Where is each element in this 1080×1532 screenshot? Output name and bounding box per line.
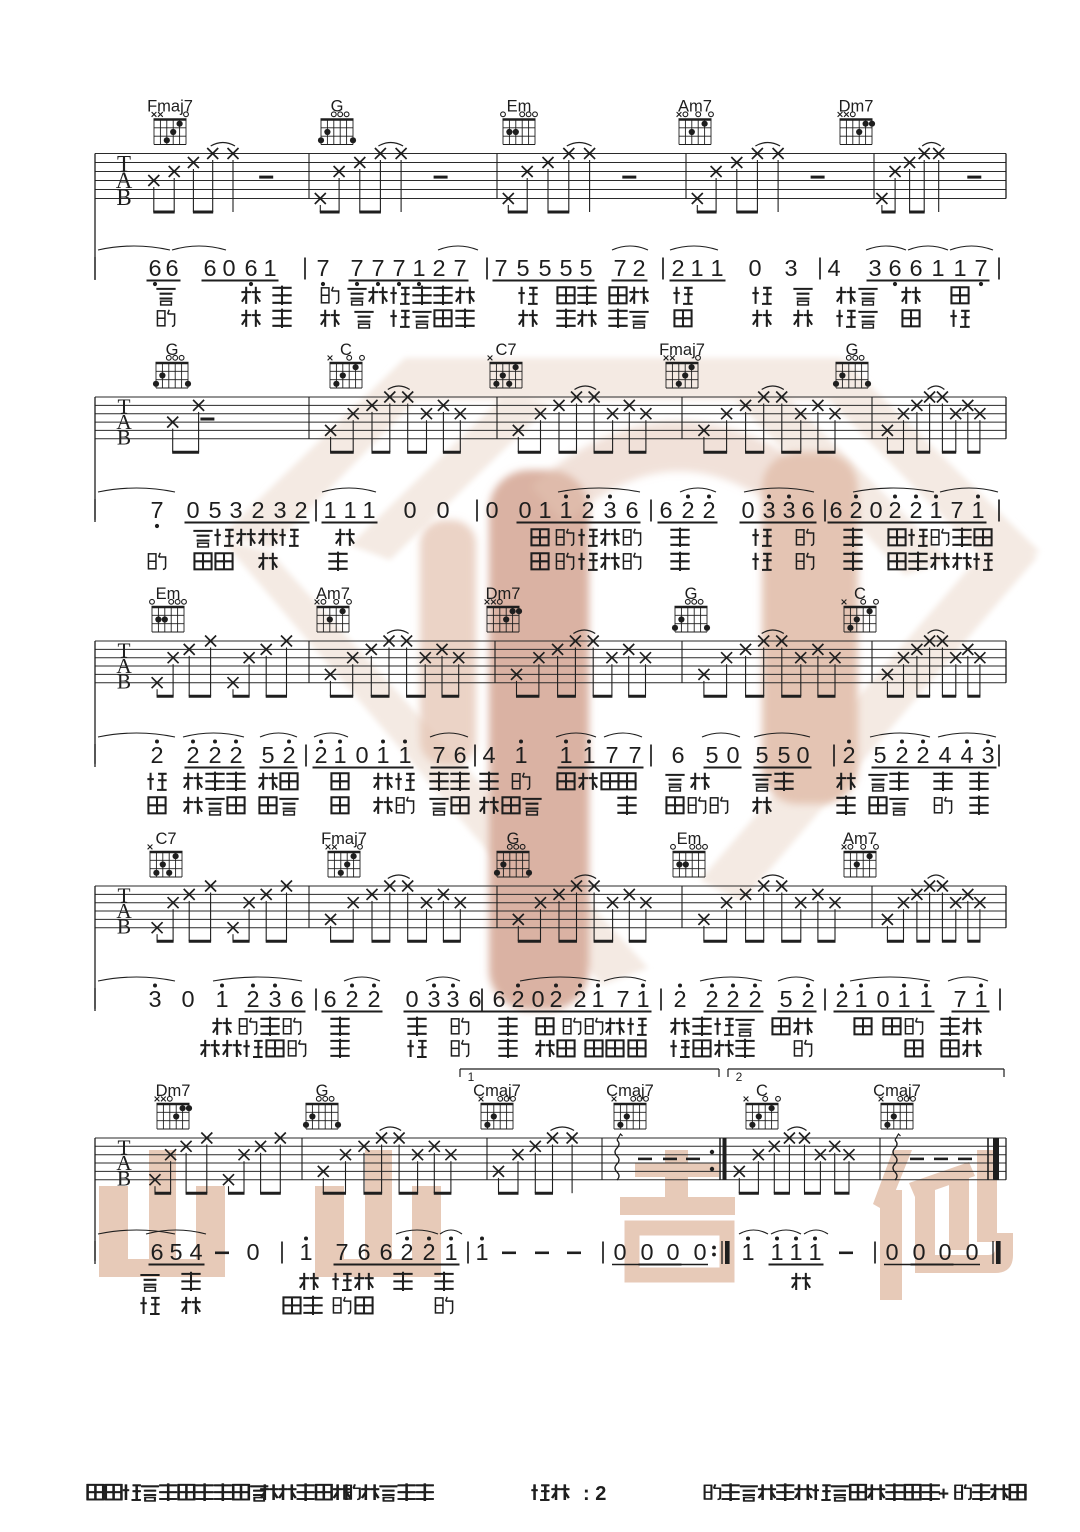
svg-text:6: 6	[203, 255, 216, 281]
svg-text:6: 6	[150, 1239, 163, 1265]
svg-text:1: 1	[636, 986, 649, 1012]
svg-text:5: 5	[755, 742, 768, 768]
svg-text:0: 0	[485, 497, 498, 523]
svg-text:1: 1	[444, 1239, 457, 1265]
svg-text:: 2: : 2	[583, 1483, 606, 1505]
svg-text:5: 5	[208, 497, 221, 523]
svg-text:4: 4	[827, 255, 840, 281]
svg-text:1: 1	[971, 497, 984, 523]
svg-text:6: 6	[379, 1239, 392, 1265]
svg-text:2: 2	[909, 497, 922, 523]
svg-text:5: 5	[516, 255, 529, 281]
svg-text:1: 1	[475, 1239, 488, 1265]
svg-text:B: B	[117, 426, 131, 450]
svg-text:B: B	[117, 670, 131, 694]
svg-text:B: B	[116, 185, 131, 210]
svg-text:0: 0	[531, 986, 544, 1012]
svg-text:0: 0	[726, 742, 739, 768]
svg-text:2: 2	[581, 497, 594, 523]
svg-text:6: 6	[909, 255, 922, 281]
svg-text:0: 0	[748, 255, 761, 281]
svg-text:7: 7	[392, 255, 405, 281]
svg-text:C: C	[340, 341, 352, 359]
svg-text:Cmaj7: Cmaj7	[473, 1082, 521, 1100]
svg-text:1: 1	[690, 255, 703, 281]
svg-text:1: 1	[789, 1239, 802, 1265]
svg-text:C7: C7	[155, 830, 176, 848]
svg-text:2: 2	[422, 1239, 435, 1265]
svg-text:6: 6	[453, 742, 466, 768]
svg-text:2: 2	[150, 742, 163, 768]
svg-text:0: 0	[965, 1239, 978, 1265]
svg-text:2: 2	[549, 986, 562, 1012]
svg-text:7: 7	[316, 255, 329, 281]
svg-text:Em: Em	[677, 830, 702, 848]
svg-text:1: 1	[559, 742, 572, 768]
svg-text:6: 6	[625, 497, 638, 523]
svg-text:3: 3	[762, 497, 775, 523]
svg-text:6: 6	[357, 1239, 370, 1265]
svg-text:2: 2	[726, 986, 739, 1012]
svg-text:2: 2	[400, 1239, 413, 1265]
svg-text:1: 1	[412, 255, 425, 281]
svg-text:3: 3	[784, 255, 797, 281]
svg-text:Dm7: Dm7	[486, 585, 521, 603]
svg-text:1: 1	[808, 1239, 821, 1265]
svg-text:1: 1	[398, 742, 411, 768]
svg-text:6: 6	[671, 742, 684, 768]
svg-text:2: 2	[801, 986, 814, 1012]
svg-text:2: 2	[282, 742, 295, 768]
svg-text:6: 6	[468, 986, 481, 1012]
svg-text:5: 5	[705, 742, 718, 768]
svg-text:+: +	[938, 1484, 949, 1505]
svg-text:Cmaj7: Cmaj7	[606, 1082, 654, 1100]
svg-text:1: 1	[538, 497, 551, 523]
svg-text:2: 2	[367, 986, 380, 1012]
svg-text:2: 2	[702, 497, 715, 523]
svg-text:0: 0	[613, 1239, 626, 1265]
svg-text:2: 2	[888, 497, 901, 523]
svg-text:Fmaj7: Fmaj7	[321, 830, 367, 848]
svg-text:2: 2	[673, 986, 686, 1012]
svg-text:1: 1	[929, 497, 942, 523]
svg-text:7: 7	[616, 986, 629, 1012]
svg-text:1: 1	[741, 1239, 754, 1265]
svg-text:2: 2	[835, 986, 848, 1012]
svg-text:0: 0	[869, 497, 882, 523]
svg-text:0: 0	[640, 1239, 653, 1265]
svg-text:2: 2	[849, 497, 862, 523]
svg-text:6: 6	[244, 255, 257, 281]
svg-text:0: 0	[405, 986, 418, 1012]
svg-text:6: 6	[290, 986, 303, 1012]
svg-text:7: 7	[150, 497, 163, 523]
svg-text:2: 2	[916, 742, 929, 768]
svg-text:4: 4	[189, 1239, 202, 1265]
svg-text:6: 6	[888, 255, 901, 281]
svg-text:6: 6	[148, 255, 161, 281]
svg-text:0: 0	[436, 497, 449, 523]
svg-text:1: 1	[215, 986, 228, 1012]
svg-text:2: 2	[246, 986, 259, 1012]
svg-text:0: 0	[666, 1239, 679, 1265]
svg-text:4: 4	[960, 742, 973, 768]
svg-text:2: 2	[432, 255, 445, 281]
svg-text:4: 4	[482, 742, 495, 768]
svg-text:3: 3	[782, 497, 795, 523]
svg-text:B: B	[117, 915, 131, 939]
svg-text:0: 0	[693, 1239, 706, 1265]
svg-text:3: 3	[603, 497, 616, 523]
svg-text:1: 1	[376, 742, 389, 768]
svg-text:2: 2	[736, 1070, 743, 1084]
svg-text:1: 1	[931, 255, 944, 281]
svg-text:3: 3	[446, 986, 459, 1012]
svg-text:7: 7	[494, 255, 507, 281]
svg-text:Em: Em	[156, 585, 181, 603]
svg-text:2: 2	[186, 742, 199, 768]
svg-text:2: 2	[748, 986, 761, 1012]
svg-text:Em: Em	[507, 98, 532, 116]
svg-text:C7: C7	[495, 341, 516, 359]
svg-text:7: 7	[974, 255, 987, 281]
svg-text:2: 2	[294, 497, 307, 523]
svg-text:1: 1	[559, 497, 572, 523]
svg-text:Fmaj7: Fmaj7	[147, 98, 193, 116]
svg-text:0: 0	[518, 497, 531, 523]
svg-text:1: 1	[582, 742, 595, 768]
svg-text:5: 5	[777, 742, 790, 768]
svg-text:Dm7: Dm7	[156, 1082, 191, 1100]
svg-text:0: 0	[403, 497, 416, 523]
svg-text:2: 2	[671, 255, 684, 281]
svg-text:0: 0	[741, 497, 754, 523]
svg-text:4: 4	[938, 742, 951, 768]
svg-text:7: 7	[953, 986, 966, 1012]
svg-text:5: 5	[779, 986, 792, 1012]
svg-text:0: 0	[885, 1239, 898, 1265]
svg-text:1: 1	[919, 986, 932, 1012]
svg-text:0: 0	[796, 742, 809, 768]
svg-text:Fmaj7: Fmaj7	[659, 341, 705, 359]
svg-text:1: 1	[854, 986, 867, 1012]
svg-text:3: 3	[268, 986, 281, 1012]
svg-text:Cmaj7: Cmaj7	[873, 1082, 921, 1100]
svg-text:3: 3	[981, 742, 994, 768]
svg-text:2: 2	[573, 986, 586, 1012]
svg-text:1: 1	[591, 986, 604, 1012]
svg-text:5: 5	[579, 255, 592, 281]
svg-text:1: 1	[953, 255, 966, 281]
svg-text:1: 1	[343, 497, 356, 523]
svg-text:0: 0	[246, 1239, 259, 1265]
svg-text:1: 1	[897, 986, 910, 1012]
svg-text:3: 3	[148, 986, 161, 1012]
svg-text:1: 1	[323, 497, 336, 523]
svg-text:5: 5	[261, 742, 274, 768]
svg-text:7: 7	[613, 255, 626, 281]
svg-text:0: 0	[876, 986, 889, 1012]
svg-text:0: 0	[186, 497, 199, 523]
svg-text:7: 7	[432, 742, 445, 768]
svg-text:2: 2	[229, 742, 242, 768]
svg-text:1: 1	[362, 497, 375, 523]
svg-text:5: 5	[169, 1239, 182, 1265]
svg-text:1: 1	[263, 255, 276, 281]
svg-text:7: 7	[371, 255, 384, 281]
svg-text:2: 2	[681, 497, 694, 523]
svg-text:6: 6	[801, 497, 814, 523]
svg-text:Dm7: Dm7	[839, 98, 874, 116]
svg-text:2: 2	[511, 986, 524, 1012]
svg-text:2: 2	[705, 986, 718, 1012]
svg-text:6: 6	[323, 986, 336, 1012]
svg-text:6: 6	[492, 986, 505, 1012]
svg-text:7: 7	[605, 742, 618, 768]
svg-text:7: 7	[453, 255, 466, 281]
svg-text:2: 2	[314, 742, 327, 768]
svg-text:3: 3	[273, 497, 286, 523]
svg-text:7: 7	[950, 497, 963, 523]
svg-text:6: 6	[829, 497, 842, 523]
svg-text:3: 3	[427, 986, 440, 1012]
svg-text:2: 2	[208, 742, 221, 768]
svg-text:B: B	[117, 1167, 131, 1191]
svg-text:0: 0	[938, 1239, 951, 1265]
svg-text:C: C	[854, 585, 866, 603]
svg-text:1: 1	[710, 255, 723, 281]
svg-text:2: 2	[251, 497, 264, 523]
svg-text:5: 5	[538, 255, 551, 281]
svg-text:0: 0	[912, 1239, 925, 1265]
svg-text:6: 6	[659, 497, 672, 523]
svg-text:2: 2	[895, 742, 908, 768]
svg-text:2: 2	[632, 255, 645, 281]
svg-text:7: 7	[350, 255, 363, 281]
svg-text:C: C	[756, 1082, 768, 1100]
svg-text:2: 2	[842, 742, 855, 768]
svg-text:7: 7	[628, 742, 641, 768]
svg-text:0: 0	[181, 986, 194, 1012]
svg-text:3: 3	[868, 255, 881, 281]
svg-text:1: 1	[299, 1239, 312, 1265]
svg-text:3: 3	[229, 497, 242, 523]
svg-text:1: 1	[974, 986, 987, 1012]
svg-text:5: 5	[873, 742, 886, 768]
svg-text:7: 7	[335, 1239, 348, 1265]
svg-text:6: 6	[165, 255, 178, 281]
svg-text:1: 1	[770, 1239, 783, 1265]
svg-text:5: 5	[559, 255, 572, 281]
svg-text:2: 2	[345, 986, 358, 1012]
svg-text:1: 1	[514, 742, 527, 768]
svg-text:1: 1	[333, 742, 346, 768]
svg-text:0: 0	[355, 742, 368, 768]
svg-text:0: 0	[222, 255, 235, 281]
